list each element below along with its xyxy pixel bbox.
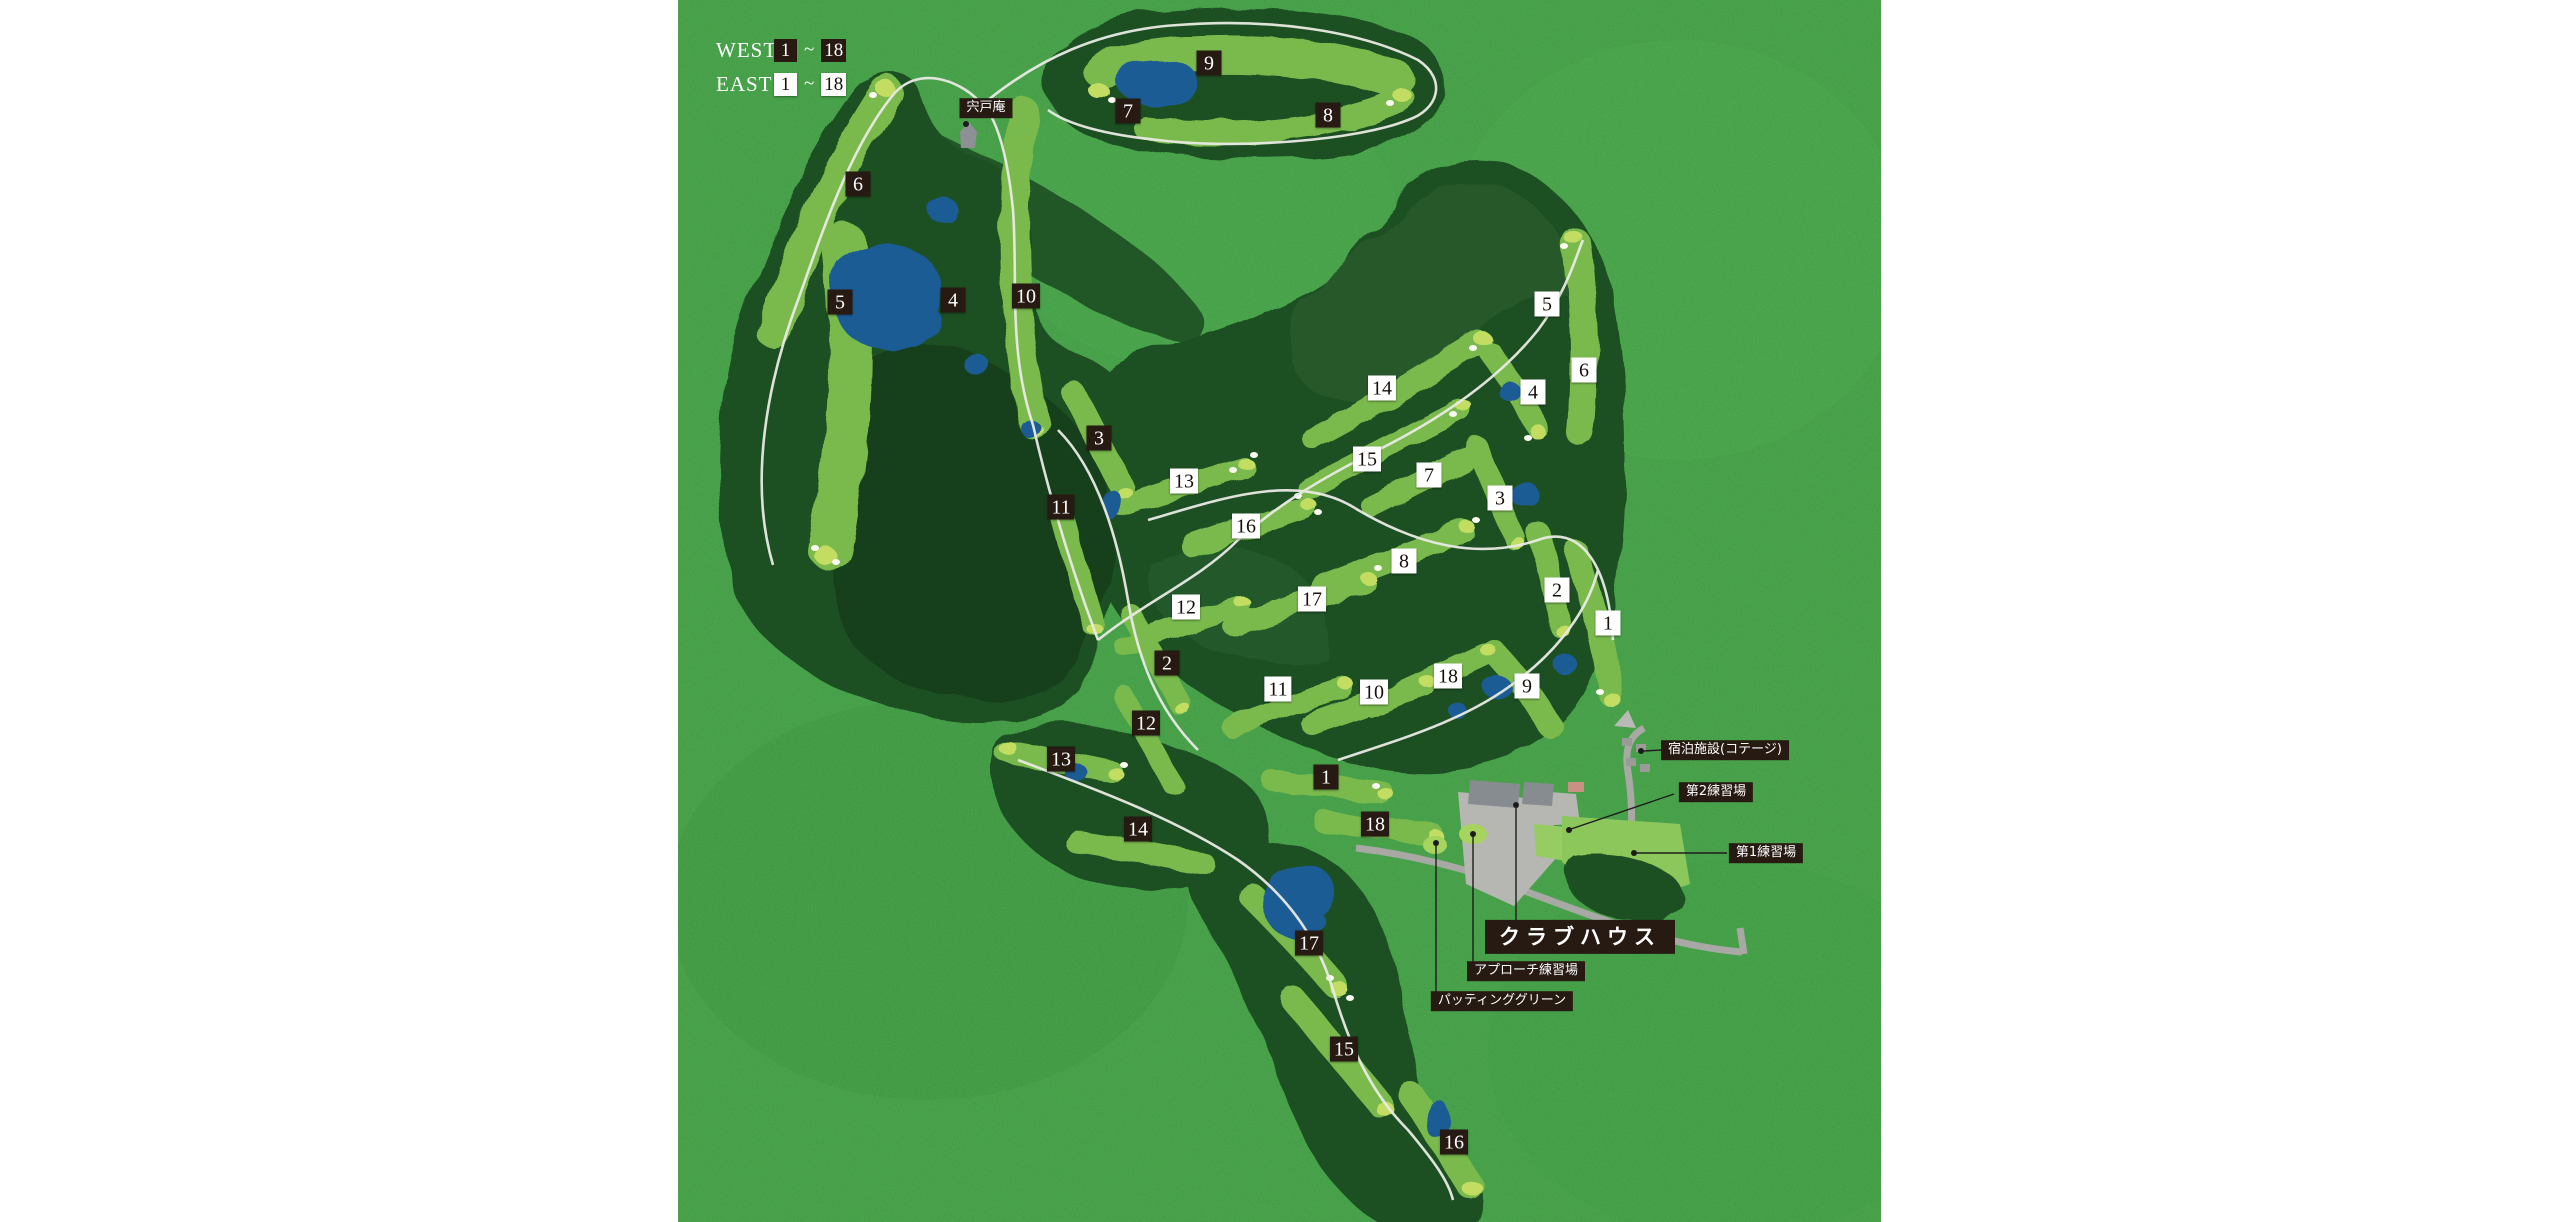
map-label-practice-range-1: 第1練習場 [1729,843,1803,863]
map-label-approach-practice: アプローチ練習場 [1467,961,1585,981]
map-label-practice-range-2: 第2練習場 [1679,782,1753,802]
hole-marker-west-16: 16 [1440,1130,1468,1155]
hole-marker-west-9: 9 [1197,51,1222,76]
hole-marker-west-6: 6 [846,172,871,197]
hole-marker-east-10: 10 [1360,680,1388,705]
legend-row-east: EAST1~18 [716,72,846,96]
hole-marker-west-15: 15 [1330,1037,1358,1062]
legend-row-west: WEST1~18 [716,38,846,62]
hole-marker-east-12: 12 [1172,595,1200,620]
hole-marker-west-2: 2 [1155,651,1180,676]
hole-marker-east-3: 3 [1488,486,1513,511]
hole-marker-east-6: 6 [1572,358,1597,383]
hole-marker-west-11: 11 [1047,495,1074,520]
map-label-clubhouse: クラブハウス [1485,920,1675,954]
map-label-lodging-cottage: 宿泊施設(コテージ) [1661,740,1789,760]
hole-marker-east-2: 2 [1545,578,1570,603]
hole-marker-east-14: 14 [1368,376,1396,401]
hole-marker-east-5: 5 [1535,292,1560,317]
east--last_hole: 18 [821,73,846,96]
hole-marker-east-7: 7 [1417,463,1442,488]
hole-marker-west-5: 5 [828,290,853,315]
course-legend: WEST1~18EAST1~18 [716,38,846,106]
east--course: EAST [716,72,774,97]
west--last_hole: 18 [821,39,846,62]
hole-marker-west-1: 1 [1314,765,1339,790]
hole-marker-west-13: 13 [1047,747,1075,772]
hole-marker-west-7: 7 [1116,99,1141,124]
hole-marker-west-17: 17 [1295,931,1323,956]
hole-marker-east-15: 15 [1353,447,1381,472]
east--separator: ~ [804,73,814,95]
hole-marker-east-11: 11 [1264,677,1291,702]
hole-marker-east-1: 1 [1596,611,1621,636]
hole-marker-east-13: 13 [1170,469,1198,494]
golf-course-map-stage: WEST1~18EAST1~18 12345678910111213141516… [0,0,2560,1222]
west--separator: ~ [804,39,814,61]
west--course: WEST [716,38,774,63]
west--first_hole: 1 [774,39,797,62]
hole-marker-east-8: 8 [1392,549,1417,574]
hole-marker-east-18: 18 [1434,664,1462,689]
east--first_hole: 1 [774,73,797,96]
hole-marker-west-12: 12 [1132,711,1160,736]
map-label-putting-green: パッティンググリーン [1431,991,1573,1011]
hole-marker-east-16: 16 [1232,514,1260,539]
hole-marker-west-18: 18 [1361,812,1389,837]
hole-marker-west-14: 14 [1124,817,1152,842]
hole-marker-west-3: 3 [1087,426,1112,451]
map-label-shishido-an: 宍戸庵 [959,98,1012,118]
hole-marker-west-8: 8 [1316,103,1341,128]
hole-marker-east-4: 4 [1521,380,1546,405]
hole-marker-west-4: 4 [941,288,966,313]
hole-marker-west-10: 10 [1012,284,1040,309]
hole-marker-east-17: 17 [1298,587,1326,612]
hole-marker-east-9: 9 [1515,674,1540,699]
